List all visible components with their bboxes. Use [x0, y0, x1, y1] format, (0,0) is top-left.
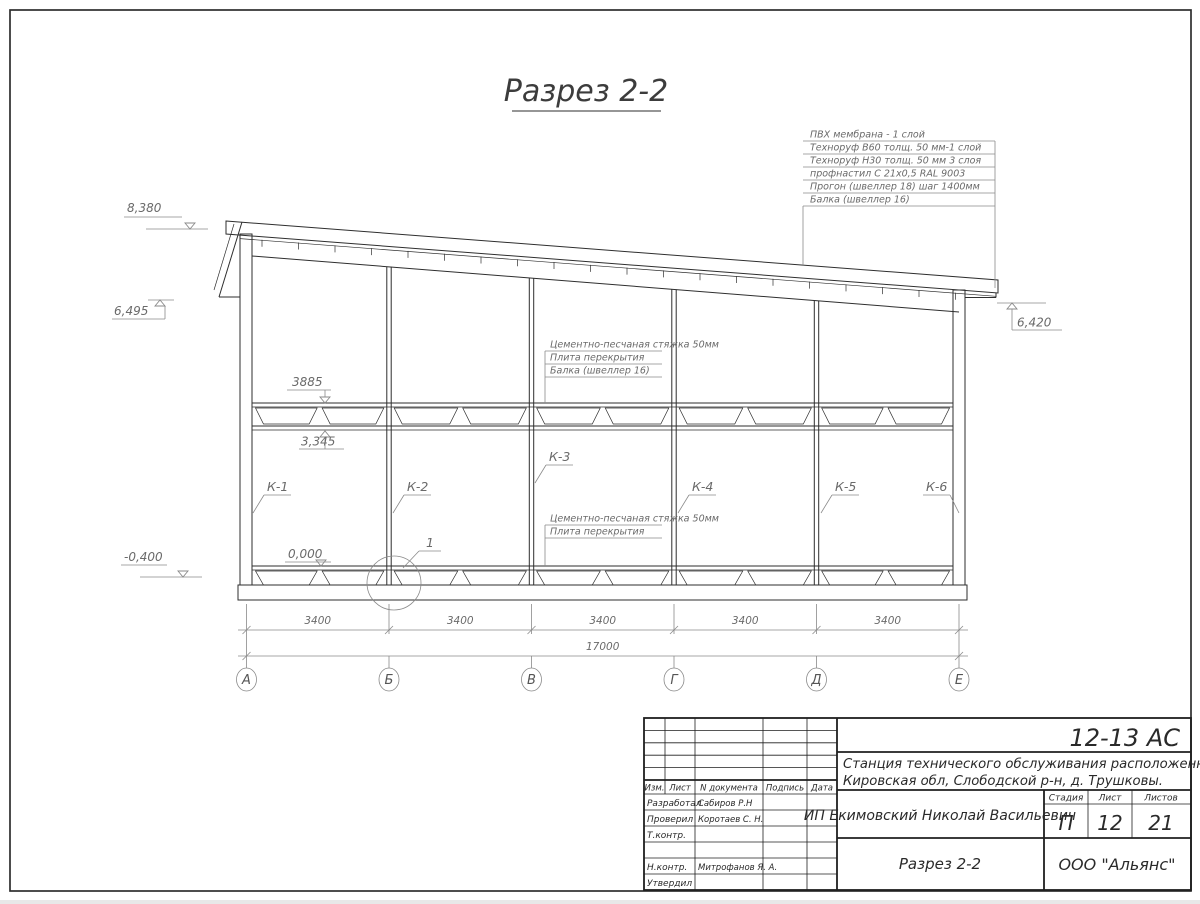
column-label-k3: К-3 — [549, 449, 570, 464]
elevation-floor-bottom: 3,345 — [299, 431, 344, 449]
elevation-right-eave: 6,420 — [997, 303, 1062, 330]
axis-bubbles: А Б В Г Д Е — [237, 668, 970, 691]
client-name: ИП Екимовский Николай Васильевич — [804, 808, 1076, 824]
roof-assembly — [214, 221, 998, 312]
floor-callout-upper: Цементно-песчаная стяжка 50мм Плита пере… — [545, 340, 719, 404]
axis-label: Е — [955, 673, 964, 688]
callout-line: профнастил С 21х0,5 RAL 9003 — [810, 169, 965, 180]
col-ndoc: N документа — [700, 784, 758, 794]
company-name: ООО "Альянс" — [1058, 855, 1175, 874]
bay-dim: 3400 — [874, 615, 901, 627]
axis-label: Д — [810, 673, 821, 688]
callout-line: Прогон (швеллер 18) шаг 1400мм — [810, 182, 980, 193]
title-block: 12-13 АС Станция технического обслуживан… — [644, 718, 1200, 890]
callout-line: ПВХ мембрана - 1 слой — [810, 130, 925, 141]
sheets-label: Листов — [1143, 794, 1178, 804]
svg-text:Цементно-песчаная стяжка 50мм: Цементно-песчаная стяжка 50мм — [550, 514, 719, 525]
stage-value: П — [1058, 811, 1073, 835]
axis-label: Б — [385, 673, 394, 688]
sheet-number: 12 — [1097, 811, 1122, 835]
left-wall — [240, 234, 252, 585]
column-label-k6: К-6 — [926, 479, 947, 494]
bay-dim: 3400 — [304, 615, 331, 627]
column-label-k5: К-5 — [835, 479, 856, 494]
role-label: Утвердил — [647, 879, 692, 889]
elevation-floor-top: 3885 — [287, 375, 331, 403]
svg-text:6,495: 6,495 — [114, 304, 148, 318]
page-title: Разрез 2-2 — [504, 74, 668, 109]
sheet-title: Разрез 2-2 — [899, 855, 981, 873]
col-podpis: Подпись — [766, 784, 804, 794]
bay-dim: 3400 — [589, 615, 616, 627]
role-name: Митрофанов Я. А. — [698, 863, 777, 873]
axis-label: В — [527, 673, 536, 688]
sheets-total: 21 — [1148, 811, 1173, 835]
right-wall — [953, 290, 965, 585]
document-code: 12-13 АС — [1069, 724, 1180, 752]
mid-floor — [252, 403, 953, 430]
project-description-line1: Станция технического обслуживания распол… — [843, 756, 1200, 772]
svg-text:3,345: 3,345 — [301, 435, 335, 449]
svg-text:8,380: 8,380 — [127, 201, 162, 215]
floor-callout-lower: Цементно-песчаная стяжка 50мм Плита пере… — [545, 514, 719, 567]
column-label-k1: К-1 — [267, 479, 288, 494]
dimension-lines: 3400 3400 3400 3400 3400 17000 — [238, 604, 968, 668]
svg-text:Плита перекрытия: Плита перекрытия — [550, 353, 645, 364]
col-data: Дата — [810, 784, 833, 794]
svg-text:1: 1 — [426, 535, 434, 550]
axis-label: А — [241, 673, 251, 688]
svg-text:Плита перекрытия: Плита перекрытия — [550, 527, 645, 538]
svg-text:-0,400: -0,400 — [124, 550, 163, 564]
detail-marker-1: 1 — [367, 535, 441, 610]
role-label: Разработал — [647, 799, 702, 809]
role-label: Т.контр. — [647, 831, 686, 841]
svg-text:3885: 3885 — [292, 375, 323, 389]
col-list: Лист — [668, 784, 692, 794]
drawing-sheet: Разрез 2-2 ПВХ мембрана - 1 слой — [0, 0, 1200, 900]
column-labels: К-1 К-2 К-3 К-4 К-5 К-6 — [253, 449, 959, 513]
bay-dim: 3400 — [447, 615, 474, 627]
parapet-slope — [219, 222, 242, 297]
section-drawing: Разрез 2-2 ПВХ мембрана - 1 слой — [0, 0, 1200, 900]
foundation-slab — [238, 585, 967, 600]
svg-text:6,420: 6,420 — [1017, 316, 1052, 330]
callout-line: Техноруф В60 толщ. 50 мм-1 слой — [810, 143, 981, 154]
svg-text:Балка (швеллер 16): Балка (швеллер 16) — [550, 366, 650, 377]
elevation-zero: 0,000 — [285, 547, 331, 566]
elevation-ridge: 8,380 — [124, 201, 208, 229]
col-izm: Изм. — [645, 784, 665, 794]
stage-label: Стадия — [1049, 794, 1084, 804]
callout-line: Балка (швеллер 16) — [810, 195, 910, 206]
bay-dim: 3400 — [732, 615, 759, 627]
role-label: Проверил — [647, 815, 693, 825]
total-dim: 17000 — [586, 641, 620, 653]
project-description-line2: Кировская обл, Слободской р-н, д. Трушко… — [843, 773, 1163, 789]
svg-text:Цементно-песчаная стяжка 50мм: Цементно-песчаная стяжка 50мм — [550, 340, 719, 351]
axis-label: Г — [670, 673, 679, 688]
svg-text:0,000: 0,000 — [288, 547, 323, 561]
role-name: Коротаев С. Н. — [698, 815, 763, 825]
role-label: Н.контр. — [647, 863, 687, 873]
elevation-left-eave: 6,495 — [112, 300, 174, 319]
column-label-k2: К-2 — [407, 479, 428, 494]
elevation-base: -0,400 — [121, 550, 202, 577]
roof-layers-callout: ПВХ мембрана - 1 слой Техноруф В60 толщ.… — [803, 130, 995, 289]
callout-line: Техноруф Н30 толщ. 50 мм 3 слоя — [810, 156, 981, 167]
sheet-label: Лист — [1098, 794, 1123, 804]
column-label-k4: К-4 — [692, 479, 713, 494]
role-name: Сабиров Р.Н — [698, 799, 753, 809]
